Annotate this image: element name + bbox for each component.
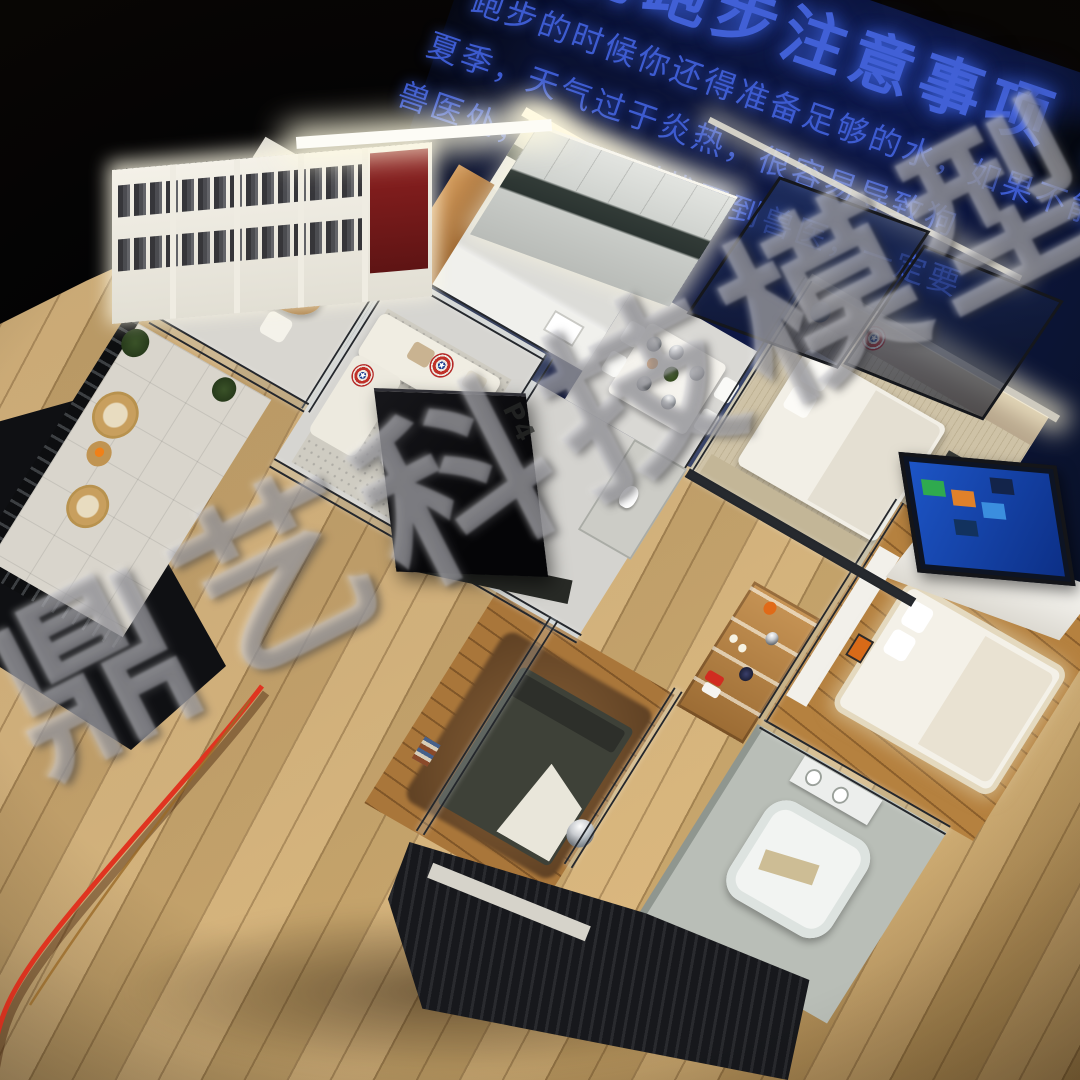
smart-tv — [898, 452, 1075, 586]
tv-blue-screen — [909, 462, 1065, 577]
app-tile — [951, 490, 976, 508]
red-accent-panel — [370, 148, 428, 273]
app-tile — [921, 479, 946, 497]
study-bookshelf-wall — [112, 142, 432, 324]
app-tile — [981, 502, 1006, 520]
app-tile — [954, 519, 979, 537]
photo-scale-model-scene: 狗狗跑步注意事项 准 跑步的时候你还得准备足够的水，如果不能够带 夏季，天气过于… — [0, 0, 1080, 1080]
app-tile — [990, 477, 1015, 495]
shield-star-icon: ★ — [356, 369, 369, 382]
shelf-dividers — [112, 148, 368, 324]
